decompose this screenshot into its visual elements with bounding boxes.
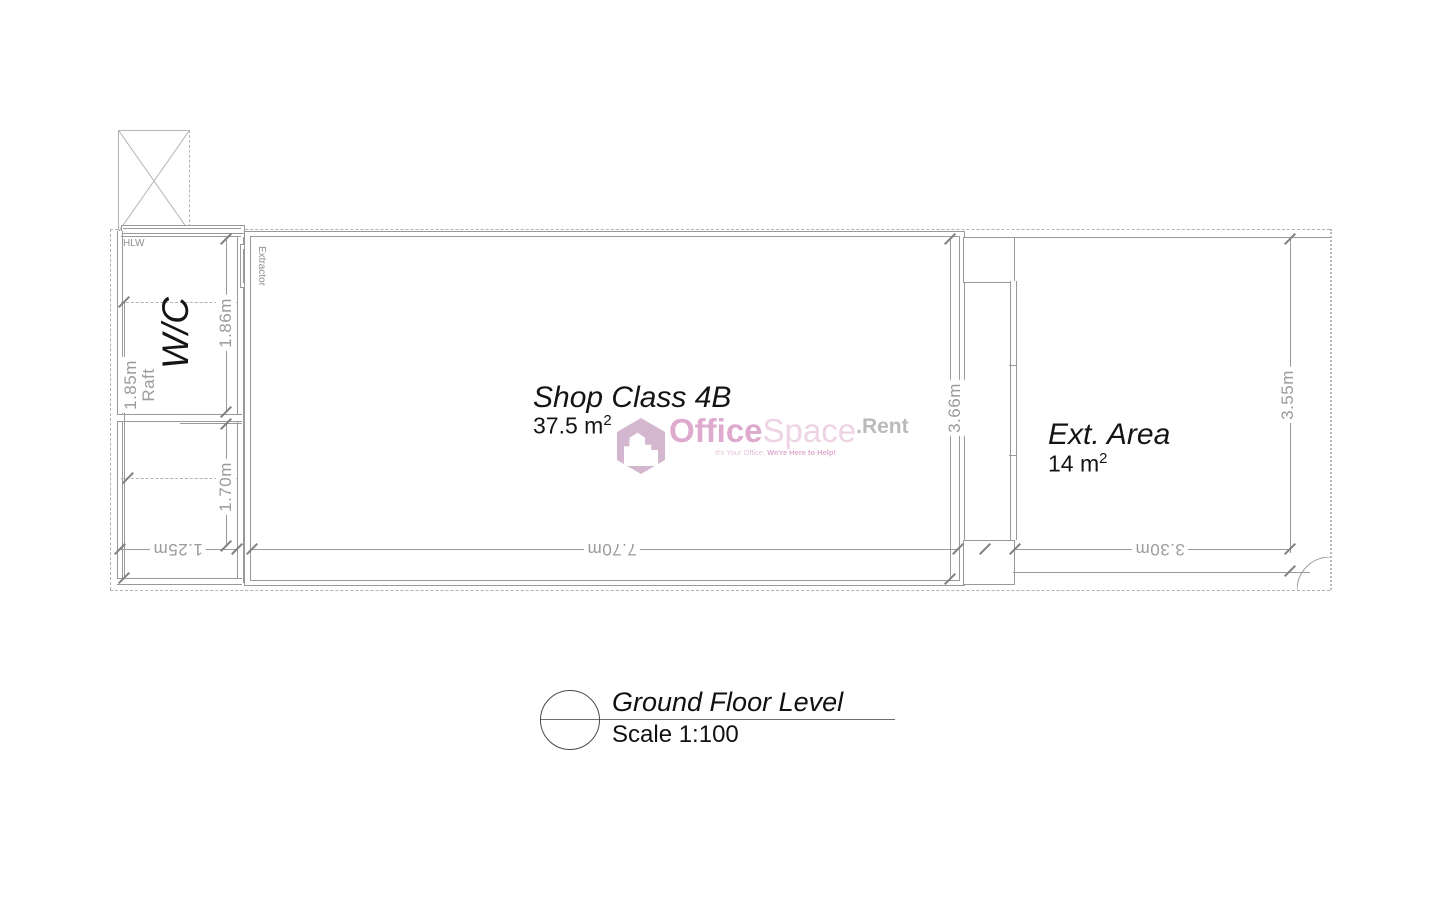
partition-recess-line: [180, 423, 242, 424]
glazing-mullion: [1009, 365, 1017, 366]
boundary-top-dashed-line: [110, 229, 1330, 230]
floor-plan-sheet: 1.85m Raft 1.86m 1.70m 1.25m 7.70m 3.66m…: [0, 0, 1440, 900]
dimension-tick: [1284, 565, 1296, 577]
watermark-office-text: Office: [669, 412, 763, 449]
shaft-cross-lines: [119, 131, 189, 231]
left-room-bottom-wall: [117, 578, 242, 585]
ext-area-top-line: [1013, 237, 1330, 238]
ext-area-value: 14 m2: [1048, 450, 1107, 478]
level-datum-circle: [540, 690, 600, 750]
drawing-scale: Scale 1:100: [612, 721, 739, 749]
dim-label-186: 1.86m: [216, 295, 236, 351]
watermark-tagline: It's Your Office, We're Here to Help!: [715, 449, 909, 457]
shop-area-value: 37.5 m2: [533, 412, 612, 440]
ext-area-text: 14 m: [1048, 451, 1099, 477]
watermark: OfficeSpace.Rent It's Your Office, We're…: [617, 414, 909, 474]
wc-window-midline: [123, 228, 241, 229]
wc-top-wall-line: [121, 236, 241, 237]
ext-area-sup: 2: [1099, 450, 1107, 467]
dim-label-raft: Raft: [139, 365, 159, 404]
dim-line-185: [124, 302, 125, 578]
watermark-space-text: Space: [763, 412, 857, 449]
dim-label-770: 7.70m: [584, 539, 640, 559]
watermark-hexagon-icon: [617, 418, 665, 474]
dim-label-185: 1.85m: [121, 357, 141, 413]
wc-window: [121, 225, 245, 234]
watermark-tagline-1: It's Your Office,: [715, 448, 767, 457]
shop-area-sup: 2: [603, 412, 611, 429]
dim-label-125: 1.25m: [150, 539, 206, 559]
watermark-rent-text: .Rent: [856, 415, 909, 438]
watermark-buildings-icon: [624, 428, 658, 466]
boundary-left-dashed-line: [110, 229, 111, 590]
door-swing-arc: [1297, 557, 1330, 590]
shop-area-text: 37.5 m: [533, 413, 603, 439]
pier-bottom: [963, 540, 1015, 585]
shopfront-glazing: [1010, 281, 1017, 540]
dim-label-366: 3.66m: [945, 380, 965, 436]
wc-room-label: W/C: [155, 297, 197, 369]
shaft-crossed-box: [118, 130, 190, 232]
wc-right-wall: [237, 237, 244, 583]
drawing-title: Ground Floor Level: [612, 687, 843, 718]
dim-label-330: 3.30m: [1132, 539, 1188, 559]
boundary-bottom-dashed-line: [110, 590, 1330, 591]
hlw-label: HLW: [123, 238, 144, 249]
shop-room-label: Shop Class 4B: [533, 381, 731, 415]
extractor-label: Extractor: [256, 246, 267, 286]
ext-area-bottom-line: [1013, 572, 1310, 573]
dim-label-170: 1.70m: [216, 459, 236, 515]
glazing-mullion: [1009, 455, 1017, 456]
watermark-tagline-2: We're Here to Help!: [767, 448, 836, 457]
pier-top: [963, 237, 1015, 283]
watermark-wordmark: OfficeSpace.Rent It's Your Office, We're…: [669, 414, 909, 457]
boundary-right-dotted-line: [1330, 229, 1332, 590]
dim-label-355: 3.55m: [1278, 367, 1298, 423]
ext-area-label: Ext. Area: [1048, 418, 1170, 452]
